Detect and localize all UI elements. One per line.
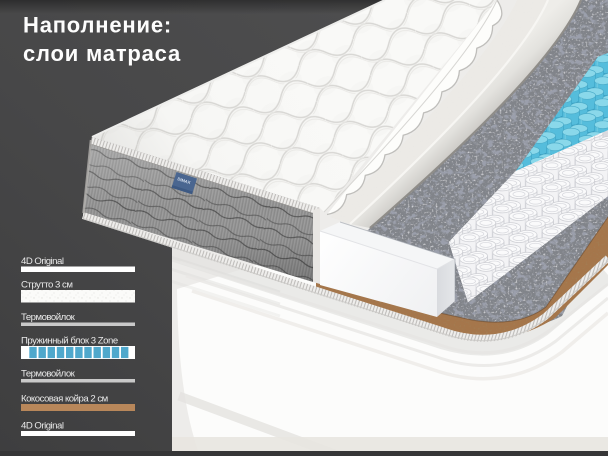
svg-text:4D Original: 4D Original <box>21 421 64 432</box>
svg-text:слои матраса: слои матраса <box>23 41 181 66</box>
svg-text:Термовойлок: Термовойлок <box>21 312 76 323</box>
svg-text:Термовойлок: Термовойлок <box>21 369 76 380</box>
svg-text:4D Original: 4D Original <box>21 256 64 267</box>
svg-text:Пружинный блок 3 Zone: Пружинный блок 3 Zone <box>21 336 118 347</box>
svg-text:Струтто 3 см: Струтто 3 см <box>21 280 72 291</box>
svg-text:Наполнение:: Наполнение: <box>23 13 172 38</box>
svg-text:Кокосовая койра 2 см: Кокосовая койра 2 см <box>21 394 108 405</box>
